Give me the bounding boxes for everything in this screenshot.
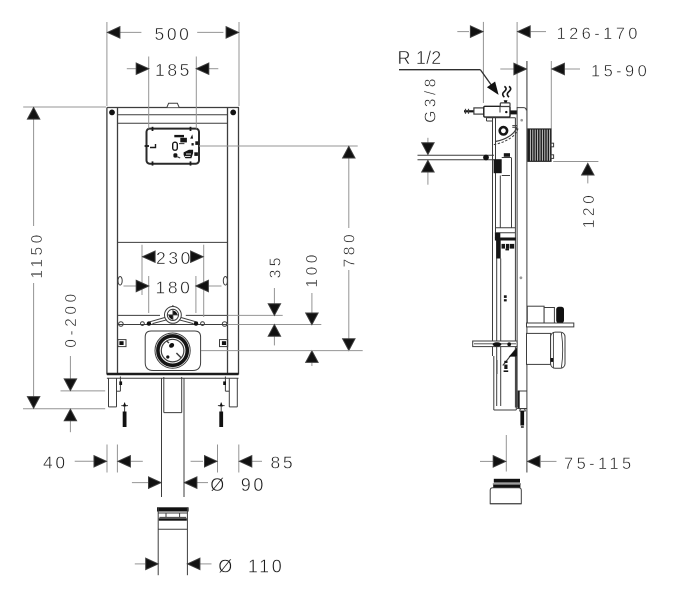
svg-text:780: 780: [342, 231, 359, 268]
svg-text:180: 180: [156, 277, 193, 297]
svg-text:35: 35: [268, 254, 285, 278]
svg-text:Ø: Ø: [218, 556, 235, 576]
svg-text:Ø: Ø: [210, 475, 227, 495]
svg-text:100: 100: [304, 251, 321, 288]
svg-text:75-115: 75-115: [564, 455, 635, 473]
svg-text:185: 185: [155, 60, 192, 80]
svg-text:110: 110: [248, 556, 285, 576]
svg-text:0-200: 0-200: [63, 290, 80, 347]
svg-text:500: 500: [155, 24, 192, 44]
svg-text:230: 230: [156, 248, 193, 268]
svg-text:85: 85: [271, 453, 296, 473]
svg-text:1150: 1150: [29, 231, 46, 279]
svg-text:15-90: 15-90: [591, 63, 650, 81]
svg-text:G3/8: G3/8: [422, 75, 439, 123]
svg-text:90: 90: [241, 475, 266, 495]
svg-text:40: 40: [43, 453, 68, 473]
svg-text:120: 120: [581, 192, 598, 229]
svg-text:126-170: 126-170: [557, 25, 641, 43]
svg-text:R 1/2: R 1/2: [398, 48, 442, 68]
